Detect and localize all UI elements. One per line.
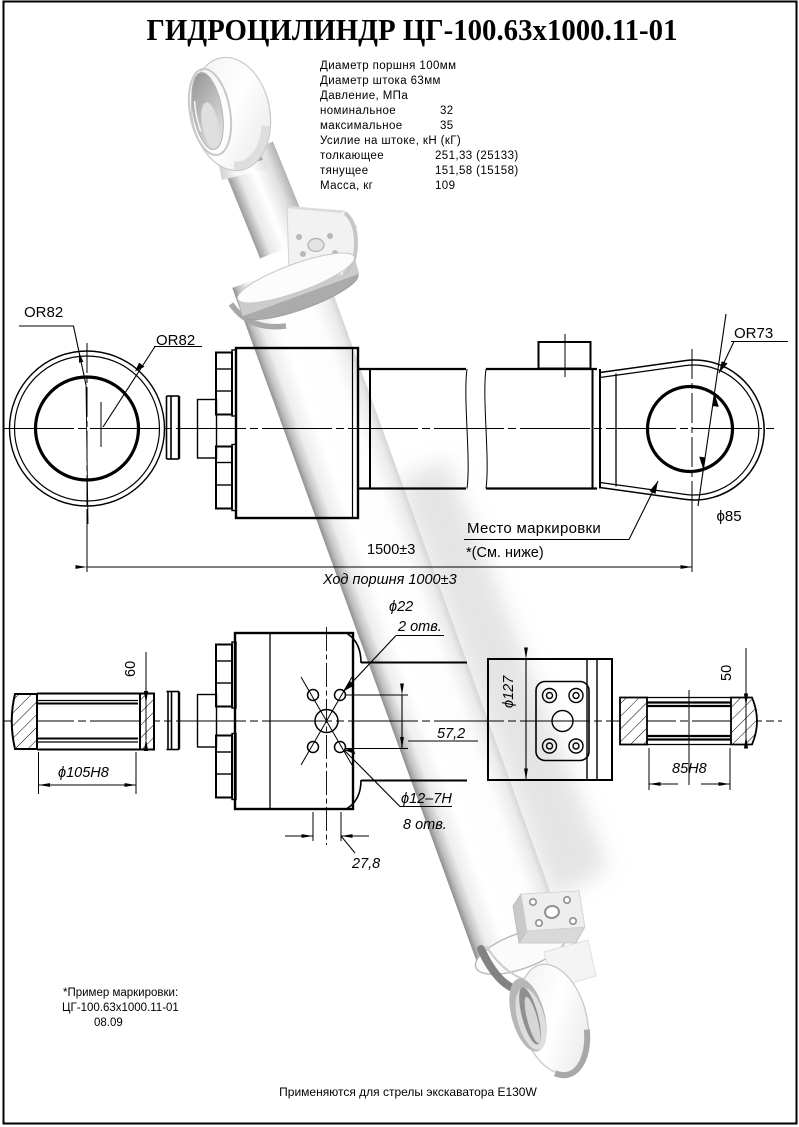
svg-text:Ход поршня 1000±3: Ход поршня 1000±3	[322, 572, 457, 588]
svg-text:максимальное: максимальное	[320, 120, 403, 132]
svg-text:35: 35	[440, 120, 454, 132]
svg-text:ϕ127: ϕ127	[501, 675, 517, 708]
svg-text:OR82: OR82	[24, 304, 63, 321]
svg-text:Место маркировки: Место маркировки	[467, 520, 601, 537]
svg-text:*(См. ниже): *(См. ниже)	[466, 545, 544, 561]
svg-text:Усилие на штоке, кН (кГ): Усилие на штоке, кН (кГ)	[320, 135, 461, 147]
svg-text:толкающее: толкающее	[320, 150, 384, 162]
svg-text:57,2: 57,2	[437, 726, 465, 742]
svg-text:тянущее: тянущее	[320, 165, 369, 177]
svg-text:Масса, кг: Масса, кг	[320, 180, 373, 192]
svg-text:ЦГ-100.63х1000.11-01: ЦГ-100.63х1000.11-01	[62, 1002, 179, 1014]
svg-text:ϕ22: ϕ22	[389, 599, 413, 615]
svg-text:32: 32	[440, 105, 454, 117]
svg-text:ϕ85: ϕ85	[717, 508, 742, 525]
svg-text:OR73: OR73	[734, 325, 773, 342]
svg-text:08.09: 08.09	[94, 1017, 123, 1029]
svg-text:ГИДРОЦИЛИНДР ЦГ-100.63х1000.11: ГИДРОЦИЛИНДР ЦГ-100.63х1000.11-01	[147, 12, 678, 47]
svg-text:Давление, МПа: Давление, МПа	[320, 90, 408, 102]
svg-text:Диаметр штока 63мм: Диаметр штока 63мм	[320, 75, 441, 87]
svg-text:109: 109	[435, 180, 455, 192]
svg-text:8 отв.: 8 отв.	[403, 817, 447, 833]
svg-text:85Н8: 85Н8	[672, 761, 707, 777]
svg-text:ϕ105Н8: ϕ105Н8	[58, 765, 109, 781]
svg-text:60: 60	[123, 661, 139, 677]
svg-text:Диаметр поршня 100мм: Диаметр поршня 100мм	[320, 60, 456, 72]
svg-text:251,33 (25133): 251,33 (25133)	[435, 150, 519, 162]
svg-text:Применяются для стрелы экскава: Применяются для стрелы экскаватора E130W	[279, 1085, 537, 1099]
svg-text:номинальное: номинальное	[320, 105, 396, 117]
svg-text:2 отв.: 2 отв.	[397, 619, 442, 635]
svg-text:1500±3: 1500±3	[367, 542, 415, 558]
svg-text:ϕ12–7Н: ϕ12–7Н	[401, 791, 452, 807]
svg-text:27,8: 27,8	[351, 856, 380, 872]
svg-text:151,58 (15158): 151,58 (15158)	[435, 165, 519, 177]
svg-text:*Пример маркировки:: *Пример маркировки:	[63, 987, 178, 999]
svg-text:50: 50	[719, 665, 735, 681]
